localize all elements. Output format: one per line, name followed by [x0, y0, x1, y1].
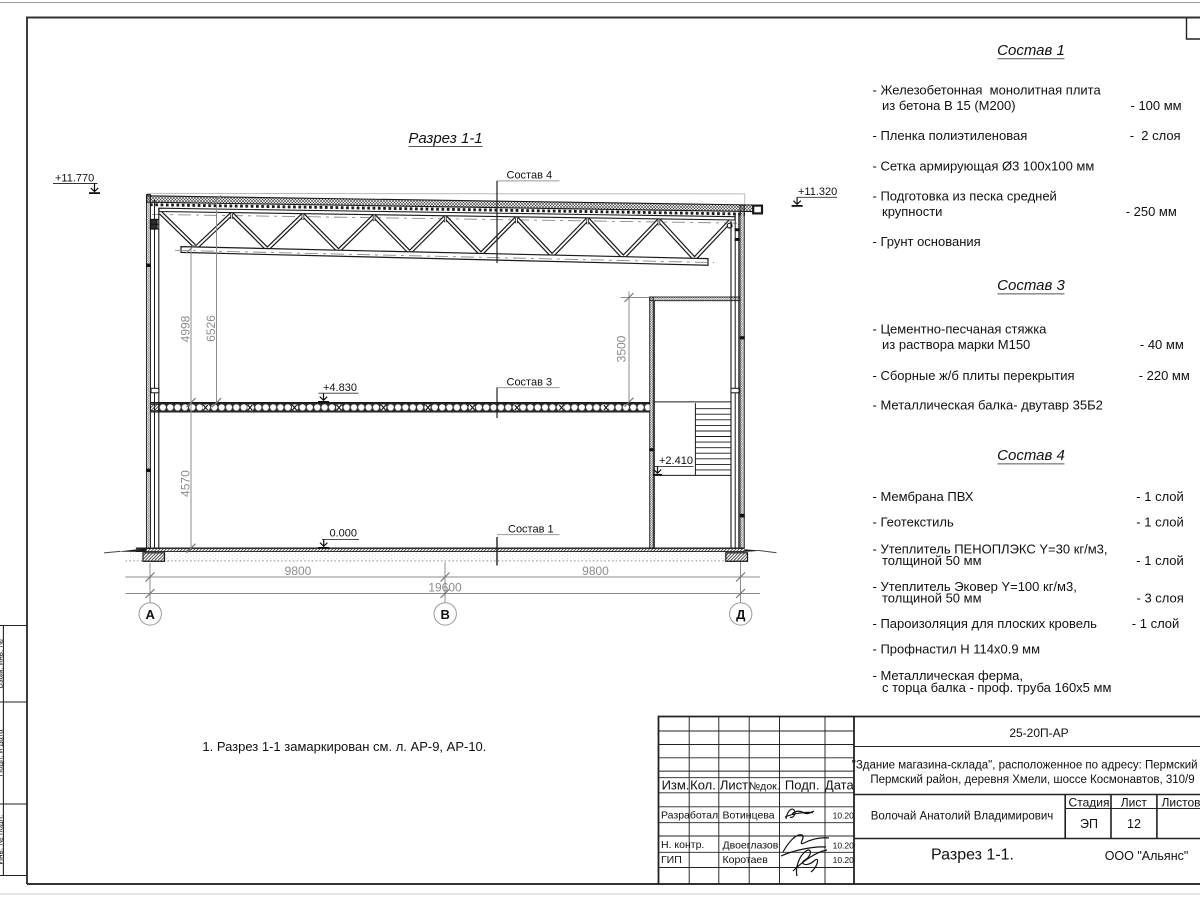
svg-text:- Геотекстиль: - Геотекстиль: [873, 515, 954, 530]
svg-text:А: А: [146, 607, 156, 622]
svg-text:Состав 3: Состав 3: [507, 377, 553, 389]
svg-text:10.20: 10.20: [833, 841, 855, 851]
svg-text:+11.770: +11.770: [55, 172, 94, 184]
svg-text:Вотинцева: Вотинцева: [723, 810, 775, 822]
svg-text:Н. контр.: Н. контр.: [661, 839, 704, 851]
svg-text:12: 12: [1127, 817, 1141, 831]
svg-text:крупности: крупности: [882, 204, 942, 219]
svg-text:- Сборные ж/б плиты перекрытия: - Сборные ж/б плиты перекрытия: [873, 368, 1075, 383]
svg-text:Разрез 1-1.: Разрез 1-1.: [931, 847, 1014, 864]
svg-text:Коротаев: Коротаев: [723, 854, 769, 866]
svg-text:Листов: Листов: [1162, 796, 1200, 810]
svg-text:25-20П-АР: 25-20П-АР: [1009, 726, 1068, 740]
svg-text:Стадия: Стадия: [1069, 796, 1110, 810]
svg-text:Состав 4: Состав 4: [997, 447, 1065, 464]
svg-text:+4.830: +4.830: [323, 382, 357, 394]
svg-text:- 100 мм: - 100 мм: [1131, 98, 1182, 113]
svg-text:- Пароизоляция для плоских кро: - Пароизоляция для плоских кровель: [873, 616, 1098, 631]
svg-text:- Мембрана ПВХ: - Мембрана ПВХ: [873, 489, 974, 504]
svg-text:- 1 слой: - 1 слой: [1132, 616, 1180, 631]
svg-text:- 40 мм: - 40 мм: [1140, 337, 1184, 352]
svg-text:3500: 3500: [615, 335, 629, 362]
svg-text:Кол.: Кол.: [690, 778, 716, 793]
svg-text:- Профнастил Н 114х0.9 мм: - Профнастил Н 114х0.9 мм: [873, 642, 1041, 657]
svg-text:Инв. № подл.: Инв. № подл.: [0, 815, 4, 865]
svg-text:- 250 мм: - 250 мм: [1126, 204, 1177, 219]
svg-text:+2.410: +2.410: [659, 455, 693, 467]
svg-text:Изм.: Изм.: [662, 778, 690, 793]
svg-text:- 1 слой: - 1 слой: [1136, 489, 1184, 504]
svg-text:0.000: 0.000: [330, 528, 358, 540]
svg-text:толщиной 50 мм: толщиной 50 мм: [882, 591, 982, 606]
svg-text:- Металлическая балка- двутавр: - Металлическая балка- двутавр 35Б2: [873, 397, 1103, 412]
svg-text:- 2 слоя: - 2 слоя: [1130, 128, 1181, 143]
svg-text:Д: Д: [736, 607, 746, 622]
svg-text:Состав 1: Состав 1: [997, 42, 1065, 59]
svg-text:10.20: 10.20: [833, 855, 855, 865]
svg-text:- Железобетонная монолитная п: - Железобетонная монолитная плита: [873, 82, 1102, 97]
svg-text:Волочай Анатолий Владимирович: Волочай Анатолий Владимирович: [871, 811, 1054, 823]
svg-text:Дата: Дата: [825, 778, 855, 793]
svg-text:Взам. инв. №: Взам. инв. №: [0, 639, 4, 689]
svg-text:- Грунт основания: - Грунт основания: [873, 234, 981, 249]
svg-text:с торца балка - проф. труба 16: с торца балка - проф. труба 160х5 мм: [882, 680, 1111, 695]
svg-text:толщиной 50 мм: толщиной 50 мм: [882, 553, 982, 568]
svg-text:№док.: №док.: [749, 781, 780, 793]
svg-text:4998: 4998: [179, 315, 193, 342]
svg-text:ООО "Альянс": ООО "Альянс": [1105, 849, 1189, 863]
svg-text:Лист: Лист: [720, 778, 748, 793]
svg-text:ЭП: ЭП: [1080, 817, 1098, 831]
svg-text:из раствора марки М150: из раствора марки М150: [882, 337, 1030, 352]
svg-text:Состав 1: Состав 1: [508, 523, 554, 535]
svg-text:В: В: [441, 607, 450, 622]
svg-text:- Сетка армирующая Ø3 100х100: - Сетка армирующая Ø3 100х100 мм: [873, 158, 1095, 173]
svg-text:- 220 мм: - 220 мм: [1139, 368, 1190, 383]
svg-text:- 3 слоя: - 3 слоя: [1137, 591, 1184, 606]
svg-text:19600: 19600: [428, 581, 462, 595]
svg-text:Подп.: Подп.: [785, 778, 820, 793]
svg-text:- 1 слой: - 1 слой: [1136, 515, 1184, 530]
svg-text:Пермский район, деревня Хмели,: Пермский район, деревня Хмели, шоссе Кос…: [870, 774, 1194, 786]
svg-text:4570: 4570: [179, 470, 193, 497]
svg-text:Подп. и дата: Подп. и дата: [0, 729, 4, 777]
svg-text:- Подготовка из песка средней: - Подготовка из песка средней: [873, 188, 1057, 203]
svg-text:- Цементно-песчаная стяжка: - Цементно-песчаная стяжка: [873, 321, 1048, 336]
svg-text:6526: 6526: [204, 315, 218, 342]
svg-text:9800: 9800: [285, 564, 312, 578]
svg-text:1. Разрез 1-1 замаркирован см.: 1. Разрез 1-1 замаркирован см. л. АР-9, …: [202, 739, 486, 754]
svg-text:ГИП: ГИП: [661, 854, 682, 866]
svg-text:"Здание магазина-склада", расп: "Здание магазина-склада", расположенное …: [852, 760, 1200, 772]
svg-text:Двоеглазов: Двоеглазов: [723, 840, 779, 852]
svg-text:+11.320: +11.320: [798, 186, 837, 198]
svg-text:Разрез 1-1: Разрез 1-1: [408, 130, 482, 147]
svg-text:Состав 3: Состав 3: [997, 277, 1065, 294]
svg-text:Лист: Лист: [1121, 796, 1148, 810]
svg-text:Разработал: Разработал: [661, 809, 718, 821]
svg-text:- 1 слой: - 1 слой: [1136, 553, 1184, 568]
svg-text:10.20: 10.20: [833, 811, 855, 821]
svg-text:Состав 4: Состав 4: [507, 170, 553, 182]
svg-text:- Пленка полиэтиленовая: - Пленка полиэтиленовая: [873, 128, 1028, 143]
svg-text:из бетона В 15 (М200): из бетона В 15 (М200): [882, 98, 1016, 113]
svg-text:9800: 9800: [582, 564, 609, 578]
